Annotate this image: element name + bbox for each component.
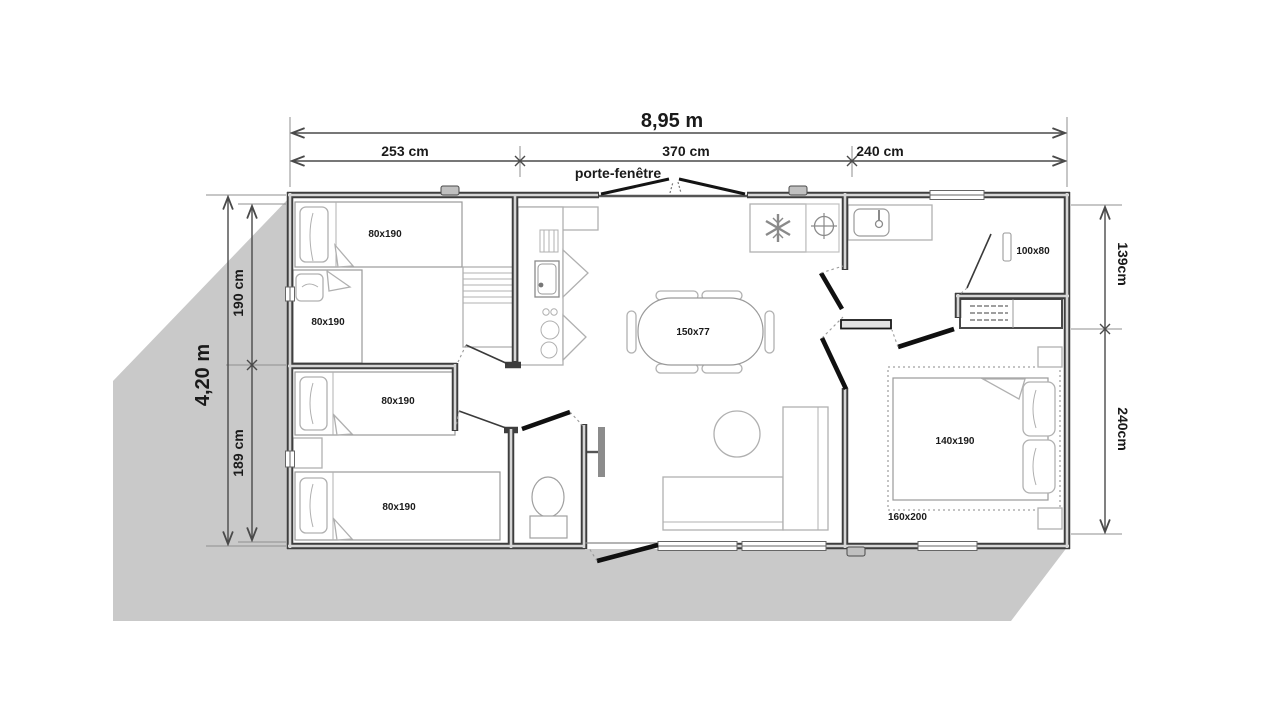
bed-size-label-3: 80x190 [381, 396, 415, 407]
segment-depth-label-2: 189 cm [230, 429, 246, 476]
window [742, 542, 826, 551]
vent [789, 186, 807, 195]
vent [441, 186, 459, 195]
pillow [1023, 382, 1055, 436]
window [918, 542, 977, 551]
nightstand [1038, 508, 1062, 529]
bed-size-label-1: 80x190 [368, 229, 402, 240]
bed-size-label-4: 80x190 [382, 502, 416, 513]
segment-width-label-1: 253 cm [381, 143, 428, 159]
toilet [530, 477, 567, 538]
bed-size-label-2: 80x190 [311, 317, 345, 328]
fridge [750, 204, 806, 252]
shelf-unit [463, 267, 513, 347]
nightstand [1038, 347, 1062, 367]
window [658, 542, 737, 551]
shower-size-label: 100x80 [1016, 246, 1050, 257]
segment-depth-label-1: 190 cm [230, 269, 246, 316]
wardrobe [960, 299, 1062, 328]
window [286, 287, 295, 301]
table-size-label: 150x77 [676, 327, 710, 338]
total-width-label: 8,95 m [641, 110, 703, 132]
segment-width-label-2: 370 cm [662, 143, 709, 159]
double-bed-size-label: 140x190 [936, 436, 975, 447]
french-door-label: porte-fenêtre [575, 165, 662, 181]
sliding-door [841, 320, 891, 329]
vent [847, 547, 865, 556]
floor-plan-canvas: 8,95 m 253 cm 370 cm 240 cm porte-fenêtr… [0, 0, 1280, 717]
segment-depth-label-4: 240cm [1115, 407, 1131, 451]
total-depth-label: 4,20 m [192, 344, 214, 406]
single-bed-3 [295, 372, 455, 435]
french-door-leaves [601, 179, 745, 194]
window [286, 451, 295, 467]
chair [765, 311, 774, 353]
bed-zone-size-label: 160x200 [888, 512, 927, 523]
pillow [1023, 440, 1055, 493]
segment-depth-label-3: 139cm [1115, 242, 1131, 286]
shower-fitting [1003, 233, 1011, 261]
segment-width-label-3: 240 cm [856, 143, 903, 159]
window [930, 191, 984, 200]
round-table [714, 411, 760, 457]
water-heater [806, 204, 839, 252]
chair [627, 311, 636, 353]
nightstand-small [293, 438, 322, 468]
floor-plan: 8,95 m 253 cm 370 cm 240 cm porte-fenêtr… [0, 0, 1280, 717]
washbasin [848, 205, 932, 240]
